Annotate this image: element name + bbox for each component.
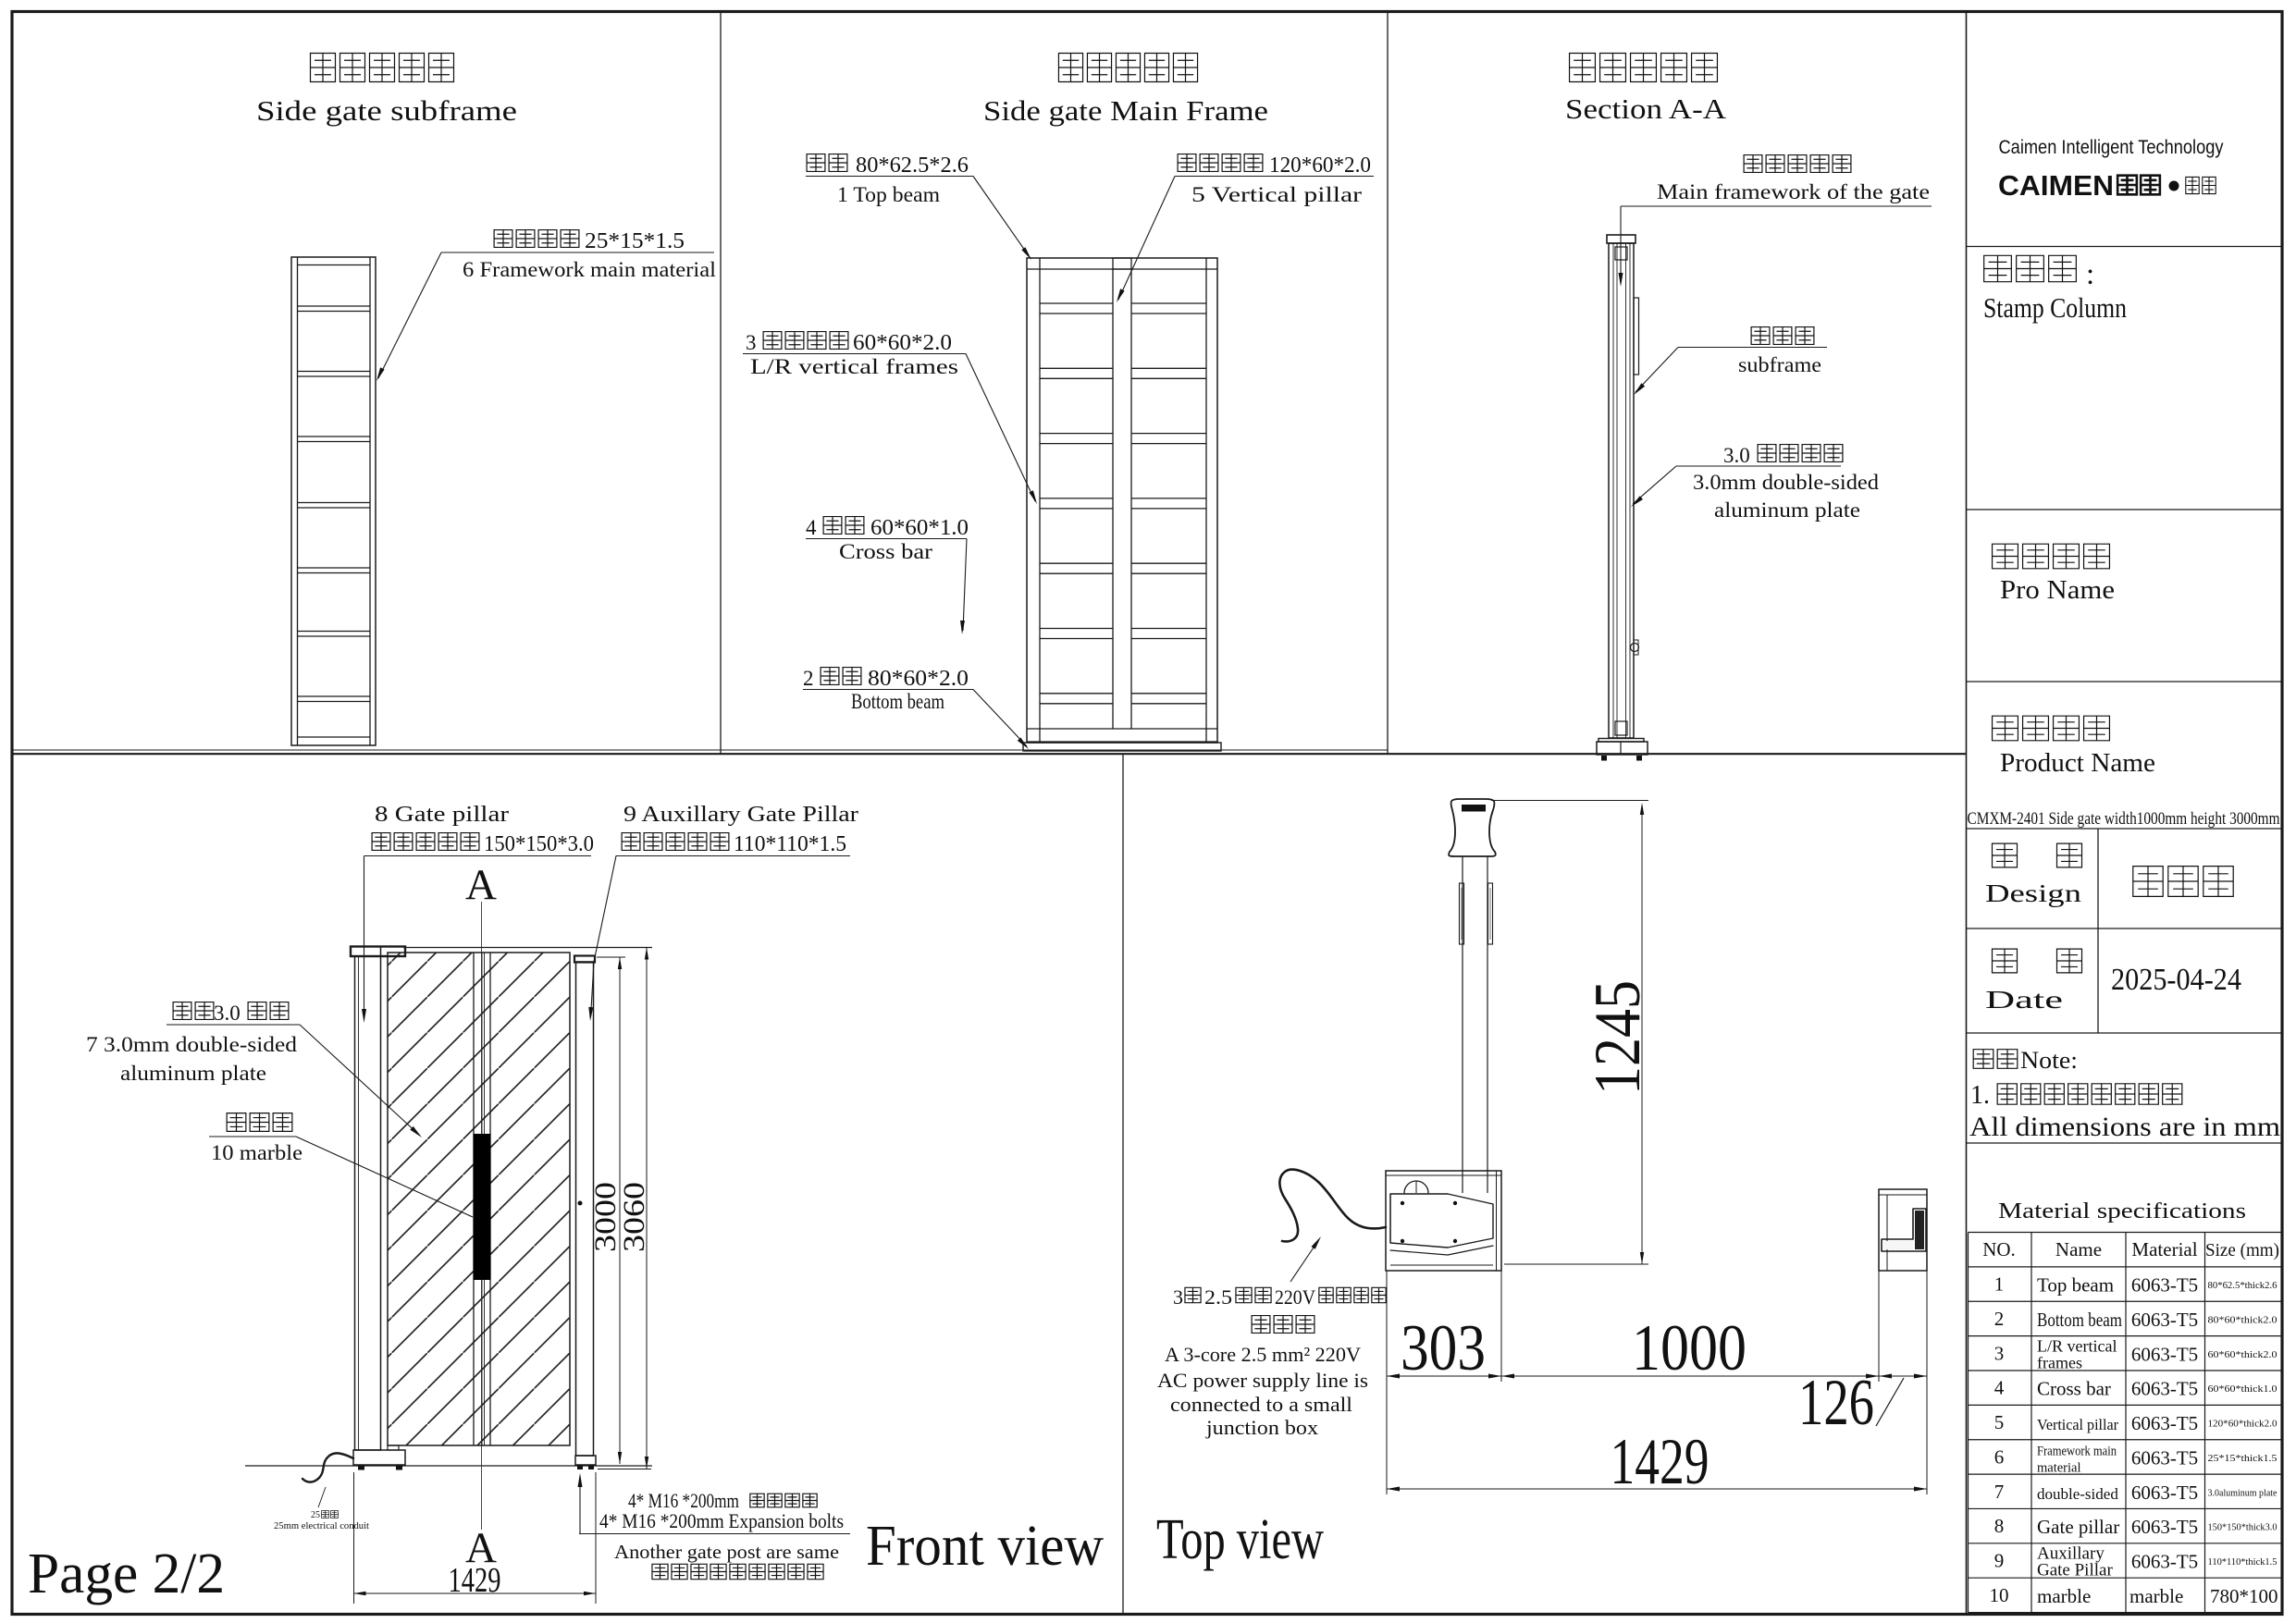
svg-text:frames: frames bbox=[2037, 1353, 2082, 1371]
svg-text:junction box: junction box bbox=[1205, 1416, 1318, 1439]
svg-text:60*60*thick2.0: 60*60*thick2.0 bbox=[2208, 1349, 2278, 1360]
svg-text:Section A-A: Section A-A bbox=[1565, 92, 1727, 125]
svg-text:6: 6 bbox=[1994, 1445, 2005, 1468]
svg-text:6063-T5: 6063-T5 bbox=[2131, 1516, 2198, 1538]
svg-text:80*60*2.0: 80*60*2.0 bbox=[868, 667, 969, 691]
svg-text:Gate pillar: Gate pillar bbox=[2037, 1516, 2119, 1538]
svg-text:subframe: subframe bbox=[1738, 353, 1821, 376]
svg-text:Another gate post are same: Another gate post are same bbox=[614, 1541, 839, 1563]
svg-text:L/R vertical: L/R vertical bbox=[2037, 1336, 2117, 1355]
svg-text:4: 4 bbox=[1994, 1377, 2005, 1399]
svg-text:6063-T5: 6063-T5 bbox=[2131, 1343, 2198, 1365]
svg-text:80*62.5*2.6: 80*62.5*2.6 bbox=[856, 154, 969, 178]
svg-text:3.0: 3.0 bbox=[214, 1002, 241, 1025]
svg-text:2.5: 2.5 bbox=[1204, 1285, 1232, 1309]
svg-text:Design: Design bbox=[1985, 879, 2082, 907]
svg-text:5 Vertical pillar: 5 Vertical pillar bbox=[1191, 183, 1362, 206]
svg-text:connected to a small: connected to a small bbox=[1170, 1393, 1352, 1416]
svg-text:3.0aluminum plate: 3.0aluminum plate bbox=[2208, 1488, 2278, 1498]
svg-text:6063-T5: 6063-T5 bbox=[2131, 1412, 2198, 1434]
svg-text:aluminum plate: aluminum plate bbox=[1714, 498, 1860, 522]
svg-text:marble: marble bbox=[2129, 1585, 2183, 1607]
svg-text:Material specifications: Material specifications bbox=[1998, 1199, 2246, 1223]
svg-text:7 3.0mm double-sided: 7 3.0mm double-sided bbox=[86, 1033, 298, 1056]
svg-text:126: 126 bbox=[1798, 1367, 1874, 1439]
svg-text:25: 25 bbox=[311, 1510, 320, 1520]
svg-text:150*150*3.0: 150*150*3.0 bbox=[484, 832, 594, 856]
svg-text:6 Framework main material: 6 Framework main material bbox=[463, 258, 716, 281]
svg-text:780*100: 780*100 bbox=[2210, 1585, 2278, 1607]
svg-text:120*60*2.0: 120*60*2.0 bbox=[1269, 154, 1371, 178]
svg-text:Framework main: Framework main bbox=[2037, 1444, 2117, 1458]
svg-text:1429: 1429 bbox=[1611, 1426, 1710, 1498]
svg-text:NO.: NO. bbox=[1982, 1238, 2016, 1260]
svg-text:6063-T5: 6063-T5 bbox=[2131, 1551, 2198, 1573]
svg-text:Note:: Note: bbox=[2020, 1047, 2078, 1074]
svg-text:Bottom beam: Bottom beam bbox=[2037, 1309, 2122, 1331]
svg-text:6063-T5: 6063-T5 bbox=[2131, 1274, 2198, 1297]
svg-text:220V: 220V bbox=[1275, 1285, 1315, 1309]
svg-text:8: 8 bbox=[1994, 1515, 2005, 1537]
svg-text:4: 4 bbox=[806, 516, 817, 539]
svg-text:120*60*thick2.0: 120*60*thick2.0 bbox=[2208, 1419, 2277, 1430]
svg-text:Side gate Main Frame: Side gate Main Frame bbox=[983, 94, 1268, 127]
svg-text:A 3-core 2.5 mm² 220V: A 3-core 2.5 mm² 220V bbox=[1165, 1343, 1361, 1366]
svg-text:Product Name: Product Name bbox=[2000, 749, 2155, 778]
svg-text:25*15*1.5: 25*15*1.5 bbox=[585, 229, 685, 253]
svg-text:3: 3 bbox=[1994, 1342, 2005, 1364]
svg-text:9 Auxillary Gate Pillar: 9 Auxillary Gate Pillar bbox=[623, 803, 858, 827]
svg-text:60*60*thick1.0: 60*60*thick1.0 bbox=[2208, 1383, 2278, 1395]
svg-text:1000: 1000 bbox=[1632, 1312, 1747, 1384]
svg-text:Pro Name: Pro Name bbox=[2000, 576, 2115, 605]
svg-text:25*15*thick1.5: 25*15*thick1.5 bbox=[2208, 1453, 2278, 1464]
svg-text::: : bbox=[2086, 258, 2094, 291]
svg-text:10 marble: 10 marble bbox=[211, 1141, 302, 1164]
svg-text:60*60*1.0: 60*60*1.0 bbox=[870, 516, 969, 540]
svg-text:1 Top beam: 1 Top beam bbox=[837, 183, 940, 206]
svg-text:Side gate subframe: Side gate subframe bbox=[256, 94, 517, 127]
svg-text:110*110*thick1.5: 110*110*thick1.5 bbox=[2208, 1556, 2277, 1568]
svg-text:Main framework of the gate: Main framework of the gate bbox=[1657, 180, 1930, 203]
svg-text:7: 7 bbox=[1994, 1481, 2005, 1503]
svg-text:6063-T5: 6063-T5 bbox=[2131, 1482, 2198, 1504]
svg-text:L/R vertical frames: L/R vertical frames bbox=[750, 355, 958, 378]
svg-text:A: A bbox=[465, 1524, 497, 1572]
svg-text:3: 3 bbox=[1173, 1285, 1183, 1309]
svg-text:2: 2 bbox=[803, 667, 814, 690]
svg-text:10: 10 bbox=[1990, 1584, 2009, 1606]
svg-text:6063-T5: 6063-T5 bbox=[2131, 1378, 2198, 1400]
svg-text:2: 2 bbox=[1994, 1308, 2005, 1330]
svg-text:aluminum plate: aluminum plate bbox=[120, 1062, 266, 1085]
svg-text:303: 303 bbox=[1401, 1312, 1486, 1384]
svg-text:1.: 1. bbox=[1970, 1081, 1990, 1110]
svg-text:3060: 3060 bbox=[618, 1182, 651, 1252]
svg-text:AC power supply line is: AC power supply line is bbox=[1157, 1369, 1368, 1392]
svg-text:double-sided: double-sided bbox=[2037, 1485, 2118, 1503]
svg-text:80*60*thick2.0: 80*60*thick2.0 bbox=[2208, 1314, 2278, 1325]
svg-text:Name: Name bbox=[2055, 1238, 2102, 1260]
svg-text:Top beam: Top beam bbox=[2037, 1274, 2114, 1297]
svg-text:A: A bbox=[465, 861, 497, 909]
svg-text:110*110*1.5: 110*110*1.5 bbox=[734, 832, 846, 856]
svg-text:Front view: Front view bbox=[866, 1515, 1104, 1578]
svg-text:Bottom beam: Bottom beam bbox=[851, 690, 944, 713]
svg-text:material: material bbox=[2037, 1460, 2081, 1475]
svg-text:marble: marble bbox=[2037, 1585, 2091, 1607]
svg-text:CAIMEN: CAIMEN bbox=[1998, 169, 2114, 202]
svg-text:Material: Material bbox=[2131, 1238, 2197, 1260]
svg-text:All dimensions are in mm: All dimensions are in mm bbox=[1969, 1112, 2280, 1142]
svg-text:150*150*thick3.0: 150*150*thick3.0 bbox=[2208, 1522, 2277, 1533]
svg-text:3.0mm double-sided: 3.0mm double-sided bbox=[1693, 471, 1880, 494]
svg-text:Page 2/2: Page 2/2 bbox=[28, 1543, 225, 1605]
svg-text:Gate Pillar: Gate Pillar bbox=[2037, 1561, 2113, 1580]
svg-text:2025-04-24: 2025-04-24 bbox=[2111, 963, 2241, 997]
svg-text:80*62.5*thick2.6: 80*62.5*thick2.6 bbox=[2208, 1281, 2277, 1291]
svg-text:Size (mm): Size (mm) bbox=[2205, 1240, 2279, 1260]
svg-text:Cross bar: Cross bar bbox=[2037, 1378, 2111, 1400]
svg-text:25mm electrical conduit: 25mm electrical conduit bbox=[274, 1521, 369, 1531]
svg-text:Stamp Column: Stamp Column bbox=[1983, 291, 2127, 324]
svg-text:1: 1 bbox=[1994, 1273, 2005, 1296]
svg-text:Date: Date bbox=[1985, 986, 2063, 1014]
svg-text:1245: 1245 bbox=[1582, 980, 1654, 1095]
svg-text:3.0: 3.0 bbox=[1723, 444, 1750, 467]
svg-text:8 Gate pillar: 8 Gate pillar bbox=[375, 803, 509, 827]
svg-text:9: 9 bbox=[1994, 1550, 2005, 1572]
svg-text:6063-T5: 6063-T5 bbox=[2131, 1309, 2198, 1331]
svg-text:Cross bar: Cross bar bbox=[839, 540, 932, 563]
svg-text:60*60*2.0: 60*60*2.0 bbox=[853, 331, 952, 355]
svg-text:6063-T5: 6063-T5 bbox=[2131, 1446, 2198, 1469]
svg-text:Vertical pillar: Vertical pillar bbox=[2037, 1416, 2118, 1433]
svg-text:5: 5 bbox=[1994, 1411, 2005, 1433]
svg-text:4* M16 *200mm Expansion bolts: 4* M16 *200mm Expansion bolts bbox=[599, 1509, 844, 1532]
svg-text:CMXM-2401 Side gate width1000m: CMXM-2401 Side gate width1000mm height 3… bbox=[1968, 809, 2280, 829]
svg-text:Caimen Intelligent Technology: Caimen Intelligent Technology bbox=[1999, 136, 2224, 158]
svg-text:Top view: Top view bbox=[1156, 1508, 1324, 1571]
svg-text:3: 3 bbox=[746, 331, 757, 354]
